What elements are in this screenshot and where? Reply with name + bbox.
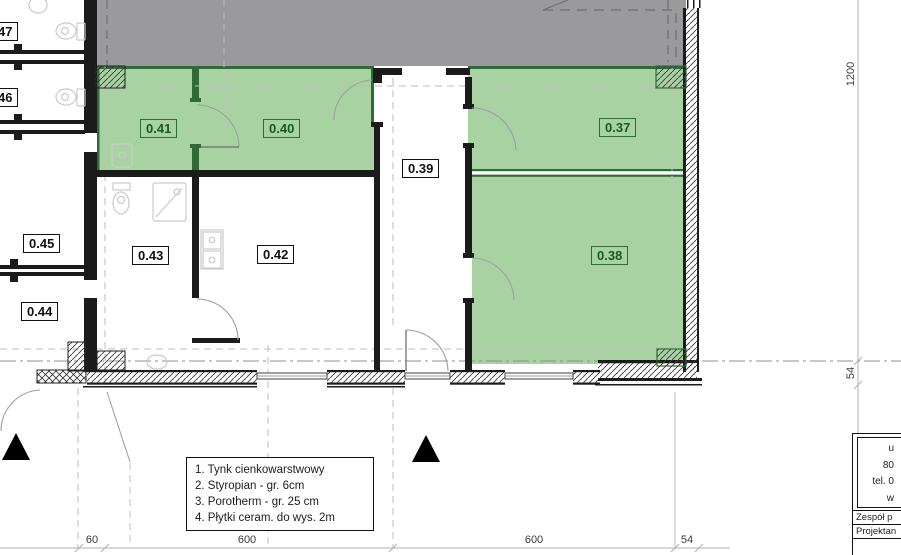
dimension-bottom-600-a: 600 xyxy=(238,534,256,546)
toilet-fixture-046 xyxy=(56,89,85,106)
title-block-row-empty xyxy=(852,538,901,555)
title-block-address-line-3: tel. 0 xyxy=(858,474,894,491)
dimension-right-54: 54 xyxy=(845,360,857,386)
wall-construction-legend: 1. Tynk cienkowarstwowy 2. Styropian - g… xyxy=(186,457,374,531)
title-block-address: u 80 tel. 0 w xyxy=(857,437,901,508)
room-label-041: 0.41 xyxy=(140,119,177,138)
building-mass-gray xyxy=(95,0,686,66)
title-block-row-projektant: Projektan xyxy=(852,524,901,538)
section-triangle-left xyxy=(2,433,30,460)
dimension-right-1200: 1200 xyxy=(845,57,857,91)
title-block-address-line-1: u xyxy=(858,441,894,458)
dimension-bottom-600-b: 600 xyxy=(525,534,543,546)
room-label-037: 0.37 xyxy=(599,118,636,137)
toilet-fixture-043 xyxy=(113,183,130,214)
legend-line-1: 1. Tynk cienkowarstwowy xyxy=(195,462,373,478)
highlighted-rooms xyxy=(97,66,686,364)
toilet-fixture-047 xyxy=(56,23,85,40)
kitchen-sink-fixture-042 xyxy=(201,230,223,269)
legend-line-2: 2. Styropian - gr. 6cm xyxy=(195,478,373,494)
title-block-address-line-2: 80 xyxy=(858,458,894,475)
floor-plan-drawing xyxy=(0,0,901,555)
room-label-039: 0.39 xyxy=(402,159,439,178)
room-label-038: 0.38 xyxy=(591,246,628,265)
dimension-bottom-60: 60 xyxy=(86,534,98,546)
room-label-040: 0.40 xyxy=(263,119,300,138)
floor-plan-canvas: 47 46 0.45 0.44 0.43 0.42 0.39 0.41 0.40… xyxy=(0,0,901,555)
legend-line-3: 3. Porotherm - gr. 25 cm xyxy=(195,494,373,510)
urinal-fixture xyxy=(29,0,47,13)
room-label-043: 0.43 xyxy=(132,246,169,265)
room-label-045: 0.45 xyxy=(23,234,60,253)
dimension-bottom-54: 54 xyxy=(681,534,693,546)
room-label-047: 47 xyxy=(0,22,18,41)
title-block-row-zespol: Zespół p xyxy=(852,510,901,524)
room-label-046: 46 xyxy=(0,88,18,107)
section-triangle-middle xyxy=(412,435,440,462)
title-block-address-line-4: w xyxy=(858,491,894,508)
shower-fixture-043 xyxy=(153,183,186,221)
toilet-fixture-bottom xyxy=(147,355,167,369)
room-label-044: 0.44 xyxy=(21,302,58,321)
room-label-042: 0.42 xyxy=(257,245,294,264)
legend-line-4: 4. Płytki ceram. do wys. 2m xyxy=(195,510,373,526)
windows xyxy=(257,373,573,379)
